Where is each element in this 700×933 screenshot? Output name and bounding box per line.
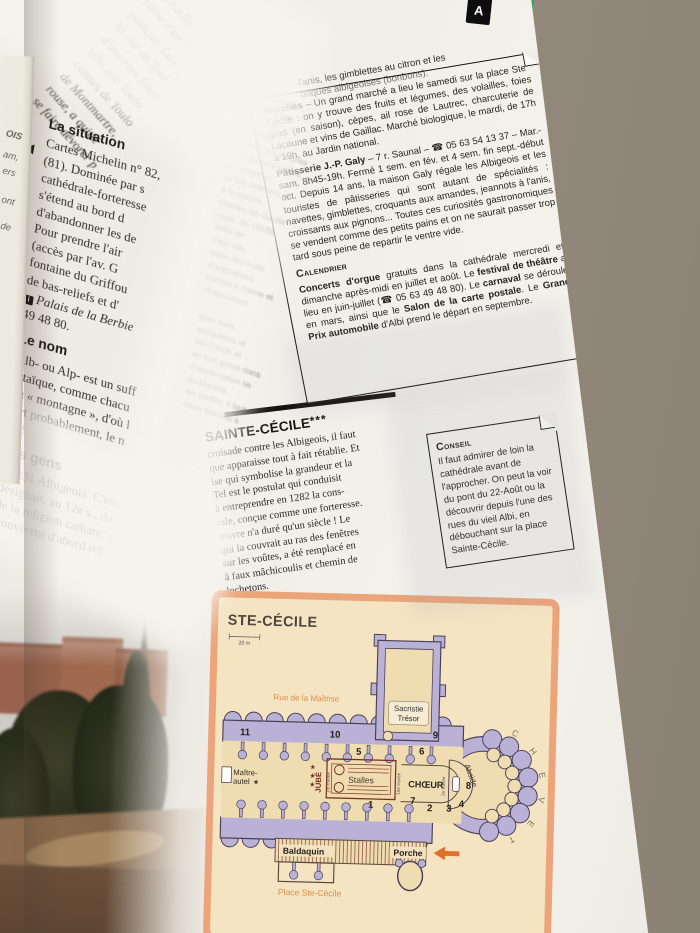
index-tab-a: A [466,0,493,25]
svg-text:Porche: Porche [393,847,422,858]
svg-text:★: ★ [253,778,259,786]
svg-text:2: 2 [427,803,433,814]
svg-text:E: E [537,771,548,779]
cathedral-plan: Sacristie Trésor [203,590,560,933]
svg-text:Sacristie: Sacristie [394,704,423,714]
svg-text:★: ★ [310,763,316,771]
porch-arrow-icon [433,846,459,860]
sainte-cecile-text: croisade contre les Albigeois, il faut q… [207,419,438,599]
svg-text:Stalles: Stalles [348,775,375,786]
guidebook-photo: ses ruelle l'âme d'un pudique. La c la c… [0,0,700,933]
svg-text:5: 5 [356,747,362,758]
svg-text:4: 4 [459,799,465,810]
svg-text:11: 11 [240,727,251,738]
svg-text:1: 1 [368,800,374,811]
svg-text:10: 10 [330,729,341,740]
svg-text:1re travée: 1re travée [325,771,331,793]
svg-text:8: 8 [466,781,472,792]
svg-text:★: ★ [309,781,315,789]
sainte-cecile-section: SAINTE-CÉCILE*** croisade contre les Alb… [204,400,438,599]
svg-text:Baldaquin: Baldaquin [283,846,325,857]
plan-scale: 20 m [238,640,250,646]
folded-corner-icon [522,49,543,70]
svg-text:T: T [506,834,516,846]
svg-text:7: 7 [410,796,416,807]
svg-text:CHŒUR: CHŒUR [408,779,444,790]
folded-corner-icon [538,413,558,433]
conseil-text: Il faut admirer de loin la cathédrale av… [438,443,554,556]
svg-text:3: 3 [446,804,452,815]
book-page: ses ruelle l'âme d'un pudique. La c la c… [0,0,700,933]
address-box: Marchés – Un grand marché a lieu le same… [248,51,597,404]
street-label: Rue de la Maîtrise [273,693,339,704]
plan-title: STE-CÉCILE [228,612,318,632]
svg-text:V: V [536,796,547,804]
svg-text:Place Ste-Cécile: Place Ste-Cécile [278,887,342,899]
svg-text:★: ★ [309,772,315,780]
svg-text:autel: autel [233,777,250,787]
svg-text:9: 9 [433,730,439,741]
svg-text:6: 6 [419,746,425,757]
stars-rating: *** [309,412,328,428]
svg-text:10e travée: 10e travée [396,772,402,795]
svg-text:Trésor: Trésor [397,714,419,724]
conseil-box: Conseil Il faut admirer de loin la cathé… [426,415,575,569]
sacristy-annex: Sacristie Trésor [370,634,447,742]
